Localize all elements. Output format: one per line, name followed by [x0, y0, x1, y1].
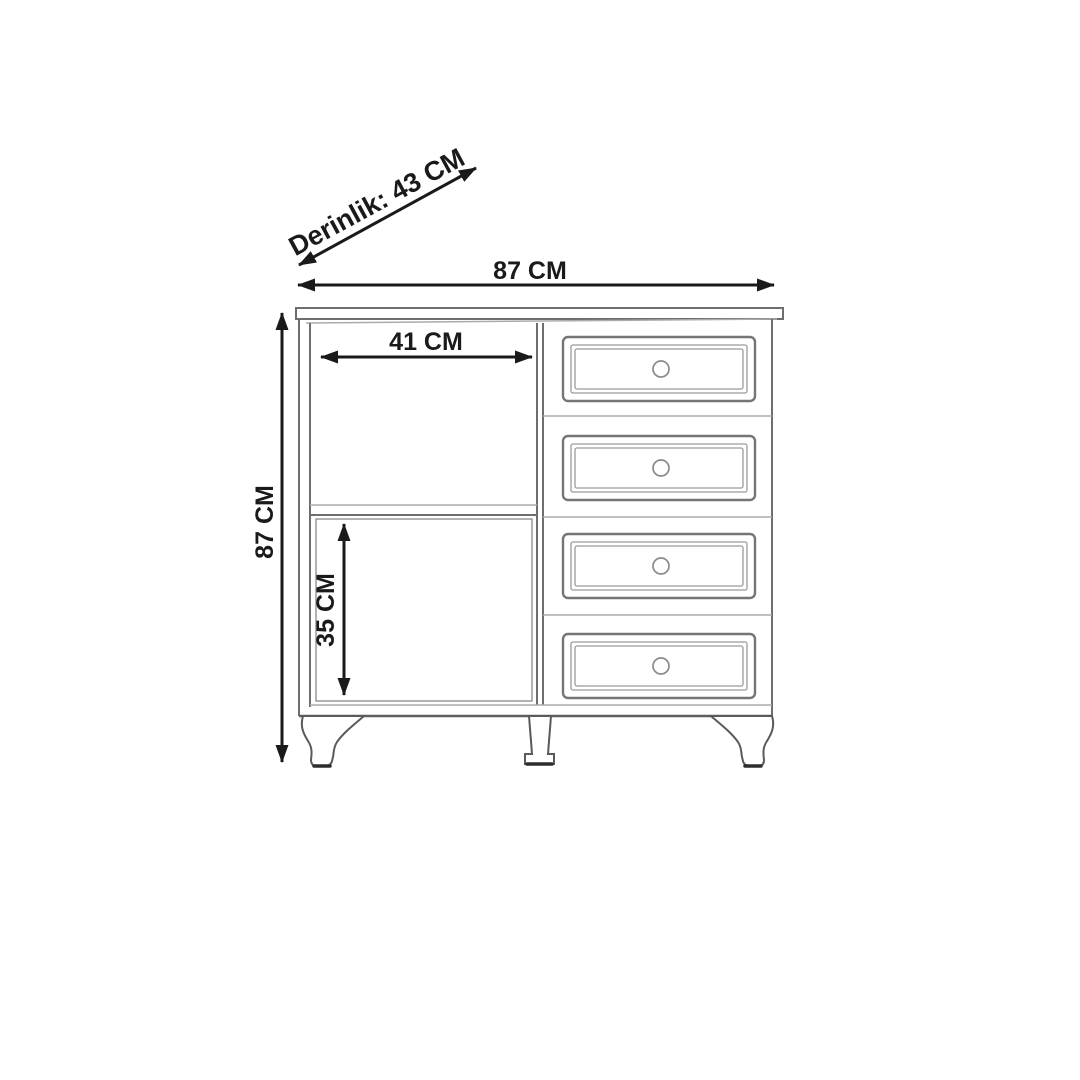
height-dimension: 87 CM	[251, 313, 282, 762]
drawer-2-knob-icon	[653, 460, 669, 476]
inner-height-dimension-label: 35 CM	[312, 573, 340, 647]
drawer-2	[563, 436, 755, 500]
drawer-1	[563, 337, 755, 401]
left-lower-door-panel	[316, 519, 532, 701]
right-leg	[711, 716, 773, 766]
cabinet-top-board	[296, 308, 783, 319]
furniture-dimension-diagram: Derinlik: 43 CM 87 CM 87 CM	[0, 0, 1080, 1080]
inner-width-dimension-label: 41 CM	[389, 328, 463, 356]
depth-dimension-label: Derinlik: 43 CM	[284, 142, 470, 261]
inner-width-dimension: 41 CM	[321, 328, 532, 357]
legs	[302, 716, 773, 766]
drawer-4	[563, 634, 755, 698]
depth-dimension: Derinlik: 43 CM	[284, 142, 476, 265]
left-upper-compartment	[310, 505, 537, 515]
diagram-svg: Derinlik: 43 CM 87 CM 87 CM	[0, 0, 1080, 1080]
drawer-1-knob-icon	[653, 361, 669, 377]
drawer-4-knob-icon	[653, 658, 669, 674]
width-dimension-label: 87 CM	[493, 257, 567, 285]
height-dimension-label: 87 CM	[251, 485, 279, 559]
drawer-3	[563, 534, 755, 598]
drawer-3-knob-icon	[653, 558, 669, 574]
middle-leg	[525, 716, 554, 764]
width-dimension: 87 CM	[298, 257, 774, 285]
left-leg	[302, 716, 364, 766]
cabinet	[296, 308, 783, 766]
